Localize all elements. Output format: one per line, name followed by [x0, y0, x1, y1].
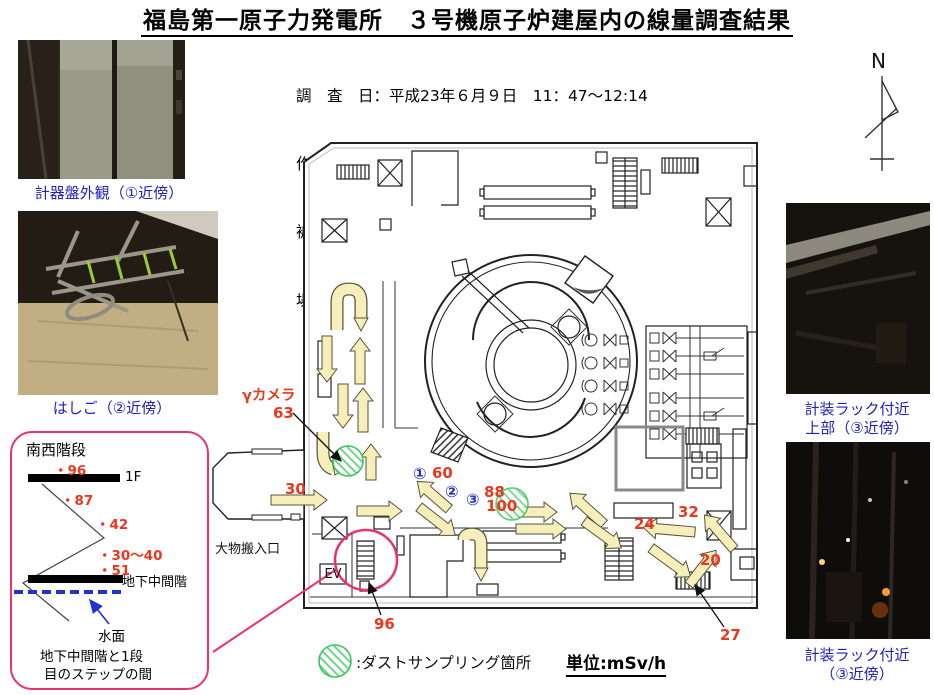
caption-line: 計装ラック付近 [780, 646, 934, 665]
page: 福島第一原子力発電所 ３号機原子炉建屋内の線量調査結果 調 査 日：平成23年６… [0, 0, 934, 695]
legend-dust-sampling: :ダストサンプリング箇所 [319, 645, 531, 677]
page-title-text: 福島第一原子力発電所 ３号機原子炉建屋内の線量調査結果 [141, 8, 793, 37]
inset-note: 地下中間階と1段 [40, 645, 143, 665]
photo-rack-lower-image [786, 442, 930, 639]
caption-line: （③近傍） [780, 665, 934, 684]
photo-ladder [18, 211, 218, 395]
dose-value: 100 [486, 497, 517, 515]
sw-stairs [357, 541, 374, 579]
floor-1f-label: 1F [125, 469, 141, 485]
caption-line: 上部（③近傍） [780, 419, 934, 438]
photo-ladder-image [18, 211, 218, 395]
gamma-camera-value: 63 [273, 404, 294, 422]
caption-line: 計装ラック付近 [780, 400, 934, 419]
water-arrow-icon [90, 600, 109, 624]
basement-mid-label: 地下中間階 [122, 571, 187, 590]
photo-rack-upper-image [786, 203, 930, 394]
legend-dust-circle-icon [319, 645, 351, 677]
gamma-camera-label: γカメラ [242, 387, 295, 404]
dose-value: 30 [285, 480, 306, 498]
survey-info-line: 調 査 日：平成23年６月９日 11：47～12:14 [296, 85, 648, 108]
north-compass: N [845, 46, 915, 181]
dose-value: 27 [720, 626, 741, 644]
dose-value: 60 [432, 464, 453, 482]
stair-reading: ・96 [54, 459, 86, 479]
north-arrow-icon [865, 76, 898, 171]
photo-caption-rack-upper: 計装ラック付近 上部（③近傍） [780, 400, 934, 438]
dose-value: 32 [678, 503, 699, 521]
dose-value: 24 [634, 515, 655, 533]
stair-reading: ・42 [96, 513, 128, 533]
photo-caption-ladder: はしご（②近傍） [22, 399, 202, 418]
photo-caption-rack-lower: 計装ラック付近 （③近傍） [780, 646, 934, 684]
dose-value: 20 [700, 551, 721, 569]
photo-instrument-panel-image [18, 40, 185, 179]
dust-sampling-circle [333, 446, 363, 476]
equipment-hatch-label: 大物搬入口 [215, 542, 280, 557]
sw-stairs-inset: 南西階段 ・96 ・87 ・42 ・30～40 ・51 1F 地下中間階 水面 … [10, 431, 209, 690]
survey-point-marker: ② [445, 482, 459, 501]
legend-dust-label: :ダストサンプリング箇所 [356, 654, 531, 672]
elevator-label: EV [324, 567, 341, 582]
photo-instrument-panel [18, 40, 185, 179]
dose-value: 96 [374, 615, 395, 633]
stair-reading: ・87 [61, 489, 93, 509]
photo-rack-lower [786, 442, 930, 639]
inset-callout-line [213, 569, 337, 652]
photo-rack-upper [786, 203, 930, 394]
survey-point-marker: ① [413, 464, 427, 483]
photo-caption-instrument-panel: 計器盤外観（①近傍） [14, 184, 204, 203]
page-title: 福島第一原子力発電所 ３号機原子炉建屋内の線量調査結果 [0, 1, 934, 35]
floor-plan: γカメラ 63 大物搬入口 EV 3060881009624322027①②③ … [211, 137, 765, 695]
water-label: 水面 [98, 625, 125, 645]
north-label: N [871, 49, 886, 73]
survey-point-marker: ③ [466, 490, 480, 509]
reactor-containment [425, 255, 637, 467]
inset-note: 目のステップの間 [44, 663, 152, 683]
